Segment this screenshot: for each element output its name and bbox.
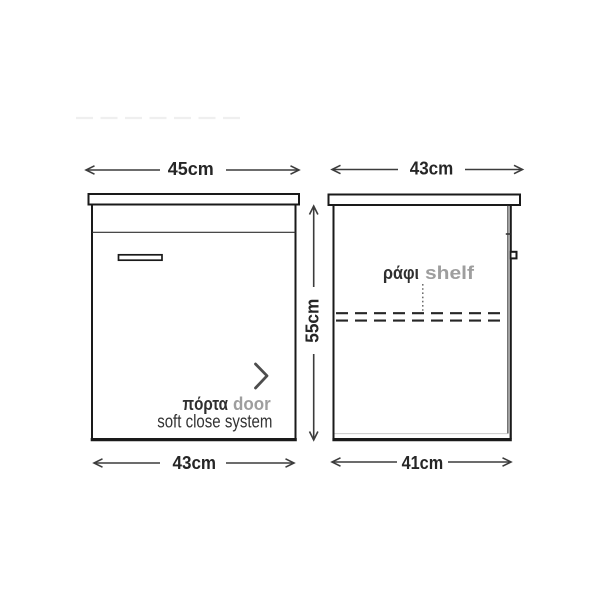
svg-text:45cm: 45cm <box>168 159 214 179</box>
svg-text:43cm: 43cm <box>173 453 217 473</box>
svg-text:55cm: 55cm <box>303 299 323 343</box>
svg-text:soft close system: soft close system <box>157 412 272 432</box>
svg-text:41cm: 41cm <box>402 453 444 473</box>
svg-text:43cm: 43cm <box>410 159 454 179</box>
svg-text:shelf: shelf <box>425 263 475 283</box>
svg-text:ράφι: ράφι <box>383 263 419 283</box>
